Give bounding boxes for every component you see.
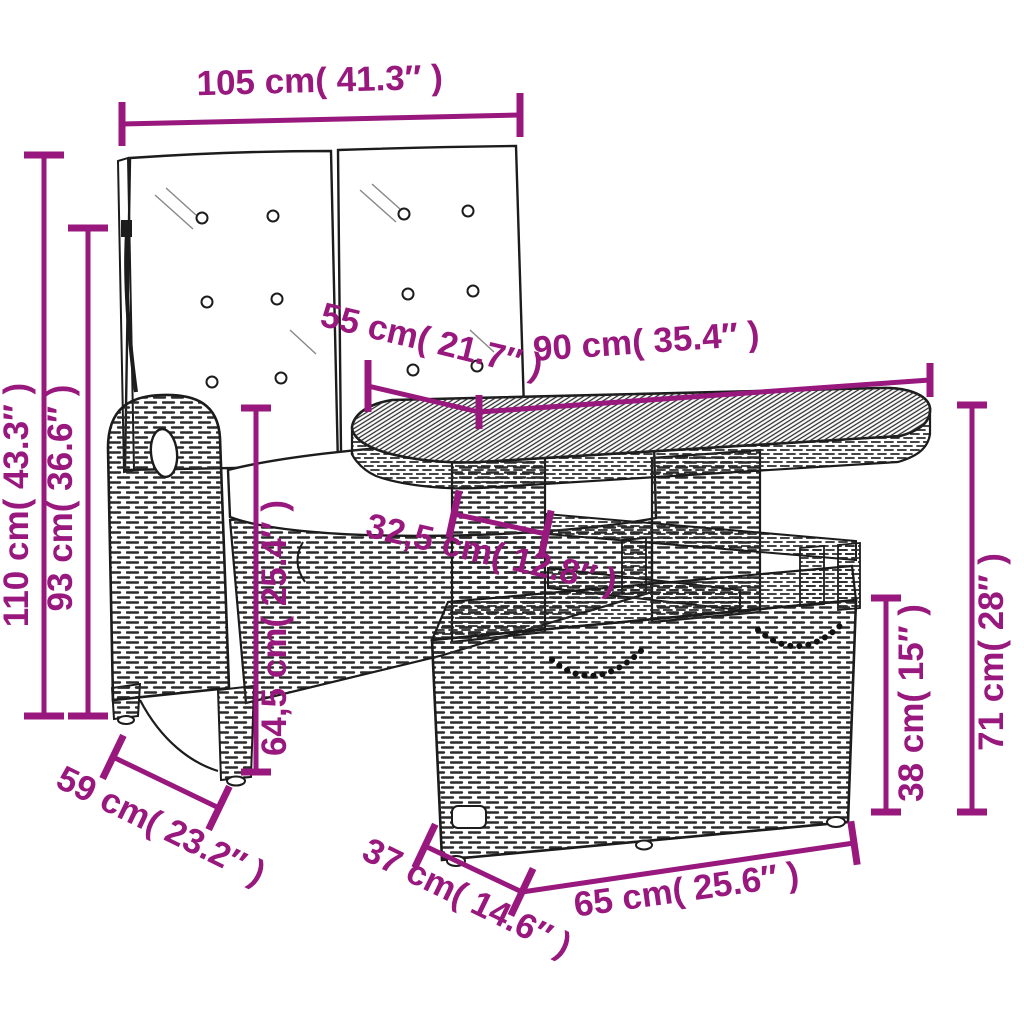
- dimension-table-height: 71 cm( 28″ ): [957, 405, 1011, 812]
- ottoman: [432, 566, 856, 866]
- dimension-ottoman-height: 38 cm( 15″ ): [871, 598, 931, 812]
- dim-label-table-width: 90 cm( 35.4″ ): [532, 314, 761, 369]
- dim-label-bench-width: 105 cm( 41.3″ ): [196, 58, 443, 103]
- base-skirt-curve: [140, 700, 218, 771]
- dim-label-ottoman-width: 65 cm( 25.6″ ): [571, 855, 801, 925]
- ottoman-foot-right: [827, 817, 845, 827]
- ottoman-vent: [452, 806, 486, 828]
- furniture-line-art: [108, 146, 940, 866]
- dim-label-table-depth: 55 cm( 21.7″ ): [317, 295, 547, 386]
- bench-armrest: [108, 395, 229, 700]
- back-left-foot: [118, 716, 134, 724]
- dimension-bench-width: 105 cm( 41.3″ ): [122, 58, 520, 146]
- front-left-leg: [218, 686, 254, 780]
- dim-label-bench-height: 110 cm( 43.3″ ): [0, 383, 36, 627]
- dim-label-table-height: 71 cm( 28″ ): [972, 553, 1011, 751]
- ottoman-front: [432, 600, 856, 860]
- strap-anchor: [121, 220, 132, 237]
- product-dimension-diagram: 105 cm( 41.3″ ) 110 cm( 43.3″ ) 93 cm( 3…: [0, 0, 1024, 1024]
- ottoman-foot-mid: [636, 841, 652, 850]
- product-diagram-canvas: 105 cm( 41.3″ ) 110 cm( 43.3″ ) 93 cm( 3…: [0, 0, 1024, 1024]
- dim-label-backrest-height: 93 cm( 36.6″ ): [41, 385, 80, 612]
- front-left-foot: [227, 777, 245, 786]
- dim-label-ottoman-height: 38 cm( 15″ ): [892, 604, 931, 802]
- dimension-backrest-height: 93 cm( 36.6″ ): [41, 228, 108, 716]
- dim-label-seat-height: 64,5 cm( 25.4″ ): [255, 500, 294, 756]
